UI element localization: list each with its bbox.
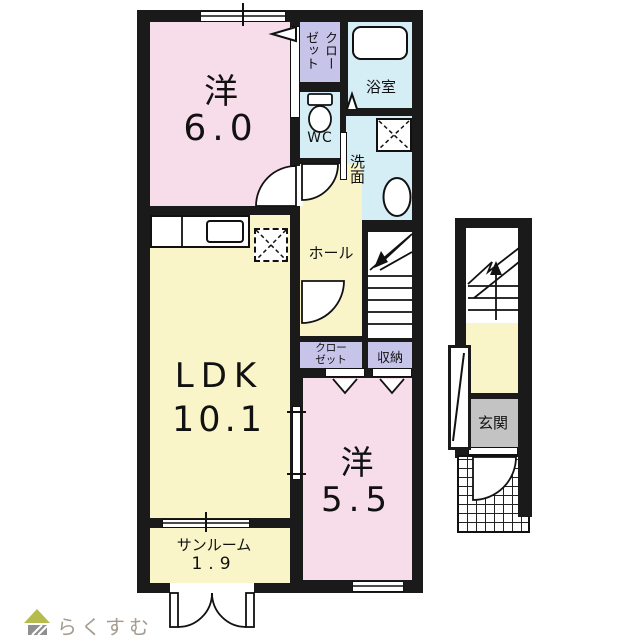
window-top xyxy=(200,11,286,22)
storage-bifold-door xyxy=(372,368,412,377)
french-doors-icon xyxy=(170,593,254,627)
ldk-name: LDK xyxy=(175,356,263,396)
sunroom-name: サンルーム xyxy=(177,534,252,555)
logo-house-icon xyxy=(24,609,50,635)
annex-right-wall xyxy=(518,218,532,517)
west-room-name: 洋 xyxy=(204,64,238,113)
bathtub-icon xyxy=(352,26,408,60)
closet-top-door xyxy=(290,26,300,118)
doorway-west-room xyxy=(290,166,303,206)
east-room-name: 洋 xyxy=(341,436,374,484)
west-room-size: 6.0 xyxy=(183,108,258,149)
kitchen-sink-icon xyxy=(206,220,244,243)
french-door-opening xyxy=(170,583,254,593)
refrigerator-space-icon xyxy=(254,228,288,262)
closet-mid-bifold-door xyxy=(325,368,365,377)
logo-text: らくすむ xyxy=(57,611,153,640)
laundry-sliding-door xyxy=(340,132,347,180)
east-room-size: 5.5 xyxy=(321,480,393,520)
ldk-size: 10.1 xyxy=(172,400,266,440)
annex-entry-step xyxy=(448,345,471,450)
window-east-bottom xyxy=(352,581,404,592)
wc-label: WC xyxy=(307,130,333,146)
genkan-label: 玄関 xyxy=(478,412,508,433)
hall-label: ホール xyxy=(308,242,353,263)
closet-top-label: クローゼット xyxy=(302,27,339,73)
closet-mid-label: クローゼット xyxy=(313,343,349,366)
east-room-sliding-door xyxy=(292,406,301,480)
storage-label: 収納 xyxy=(377,347,403,366)
stairs-main xyxy=(368,232,412,338)
genkan-door xyxy=(468,447,518,455)
annex-corridor xyxy=(466,323,520,393)
floorplan-canvas: 洋 6.0 LDK 10.1 洋 5.5 サンルーム 1.9 クローゼット 浴室… xyxy=(0,0,640,640)
washing-machine-icon xyxy=(376,118,412,152)
bath-label: 浴室 xyxy=(366,76,396,97)
window-sunroom xyxy=(162,519,250,528)
room-wc xyxy=(300,92,340,158)
laundry-label: 洗面 xyxy=(350,146,368,192)
stairs-annex xyxy=(466,228,520,323)
sunroom-size: 1.9 xyxy=(191,554,236,574)
